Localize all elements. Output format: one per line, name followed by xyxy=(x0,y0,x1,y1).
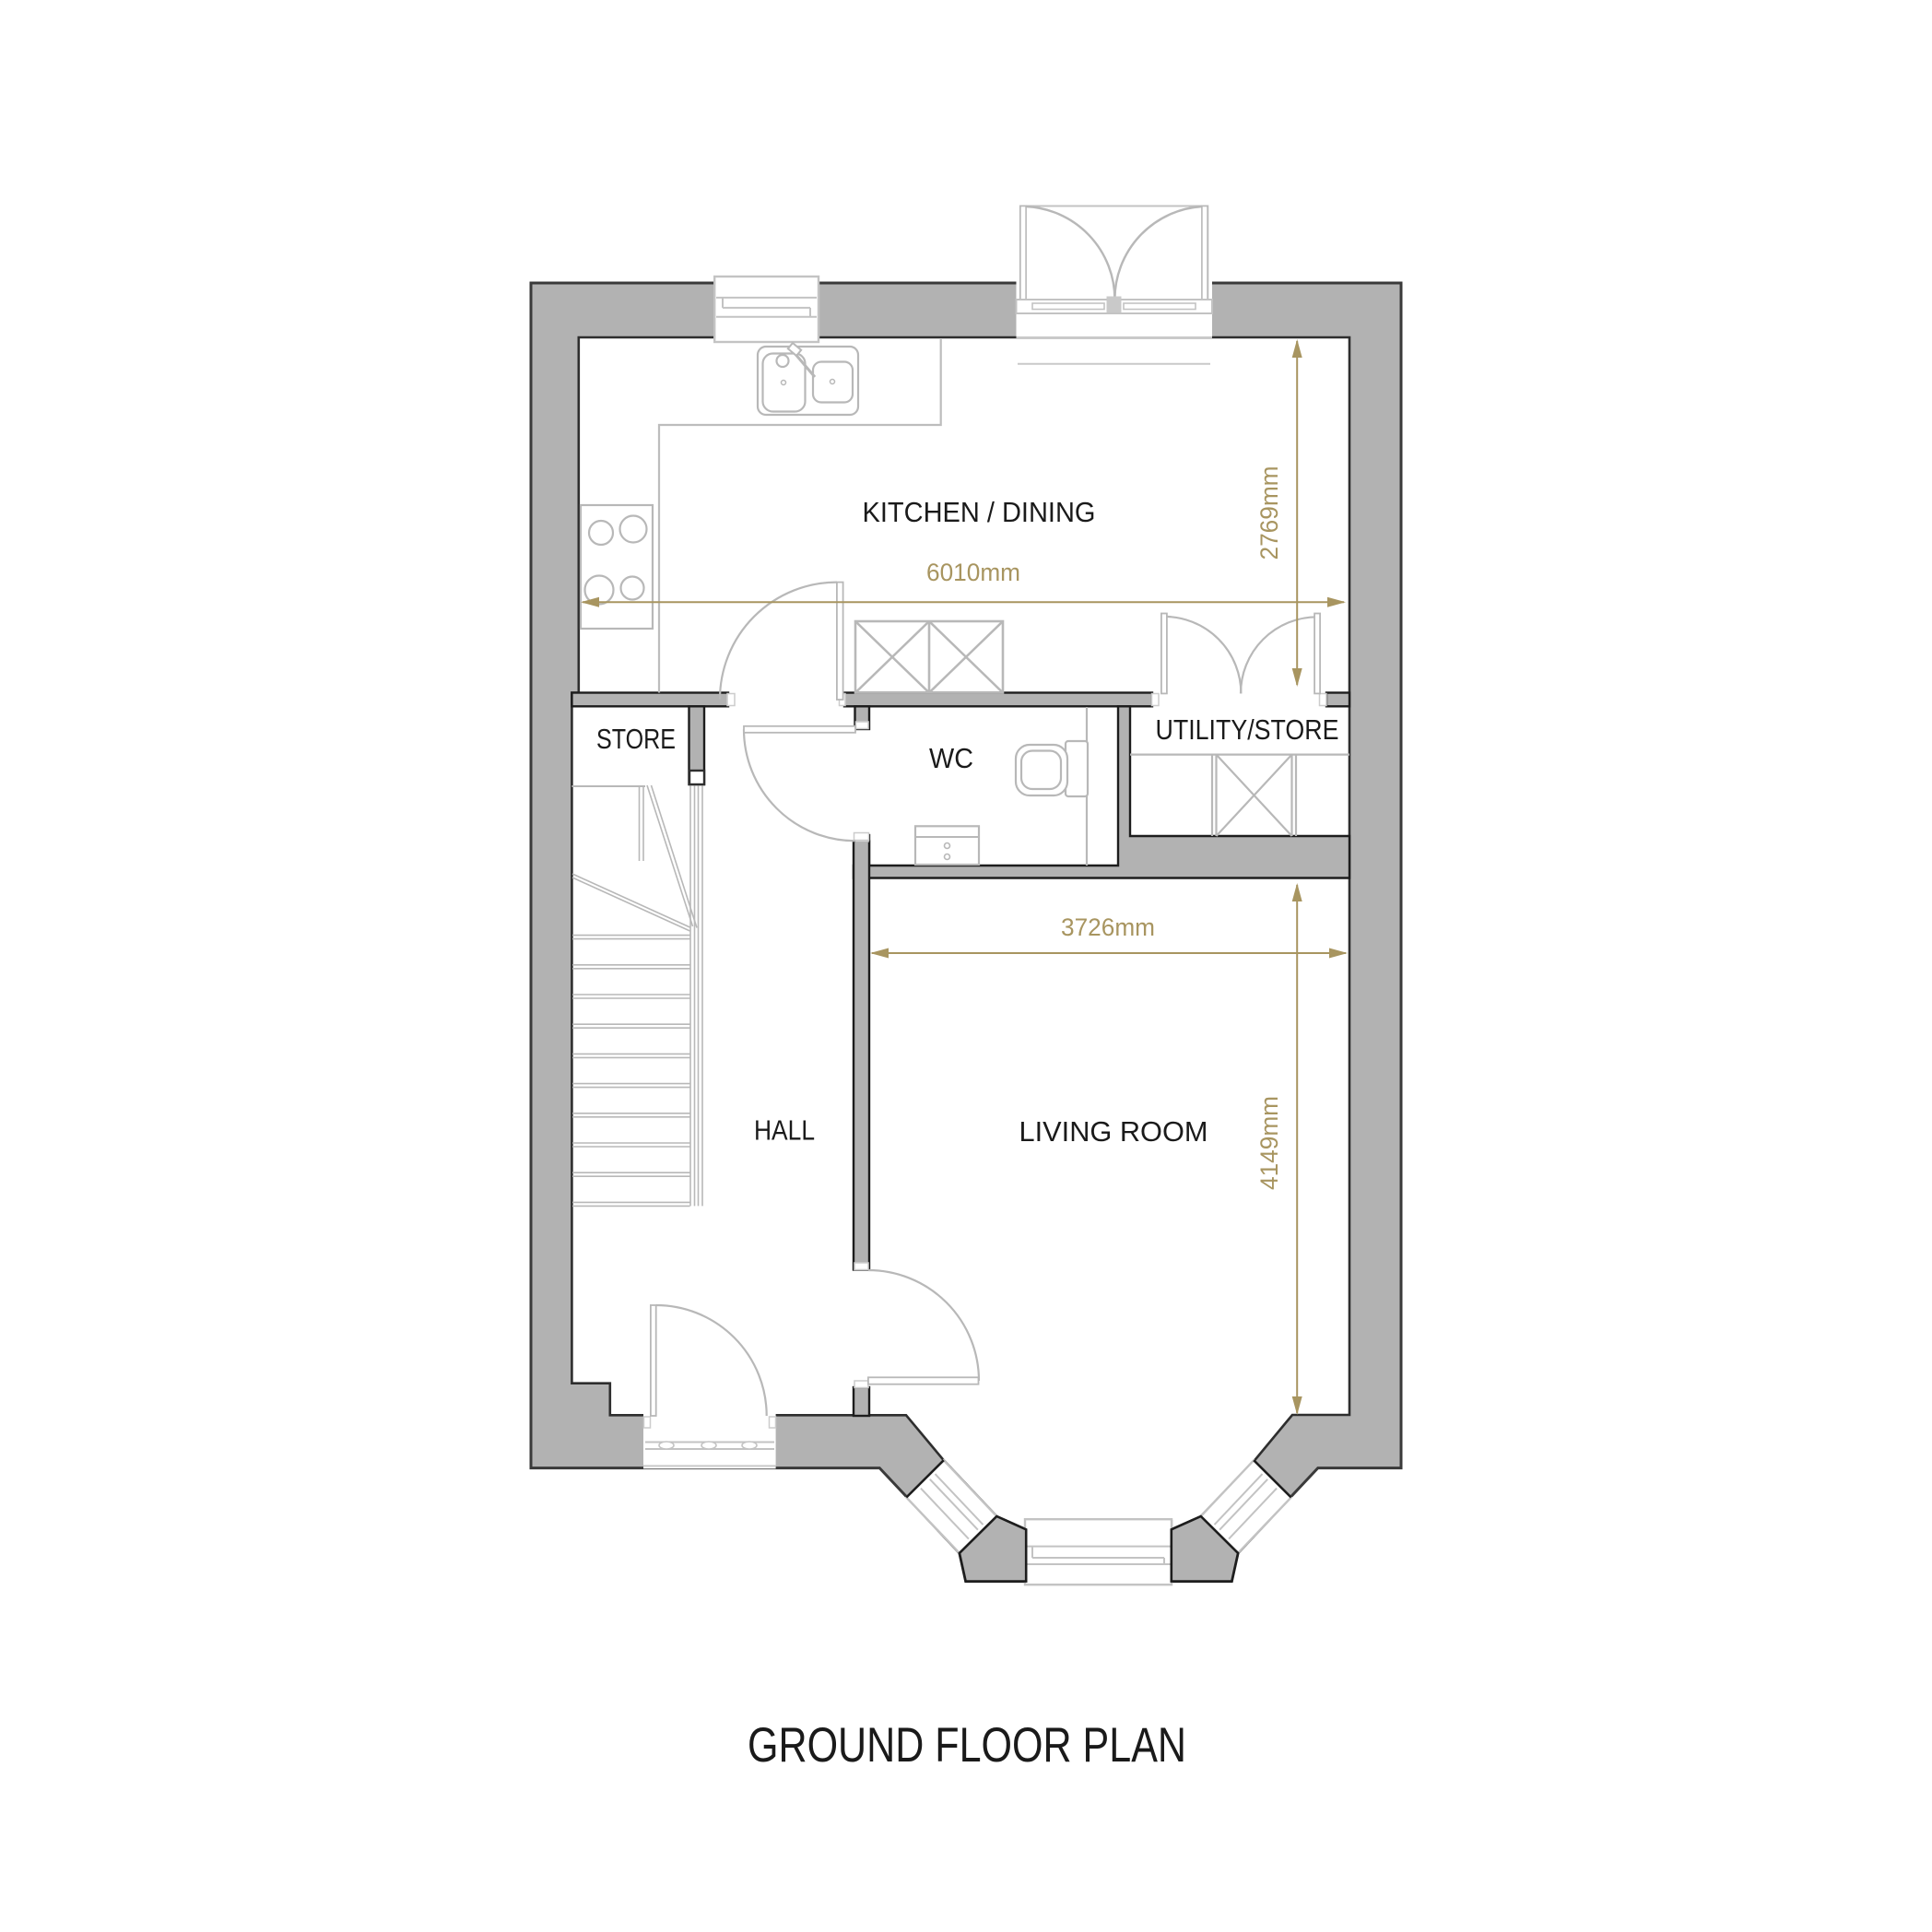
svg-text:GROUND FLOOR PLAN: GROUND FLOOR PLAN xyxy=(748,1718,1186,1773)
svg-text:HALL: HALL xyxy=(754,1114,815,1147)
svg-text:4149mm: 4149mm xyxy=(1255,1096,1283,1190)
svg-text:LIVING ROOM: LIVING ROOM xyxy=(1019,1115,1208,1148)
svg-text:UTILITY/STORE: UTILITY/STORE xyxy=(1156,713,1339,746)
svg-text:WC: WC xyxy=(929,742,973,774)
svg-text:STORE: STORE xyxy=(596,723,676,755)
svg-text:2769mm: 2769mm xyxy=(1255,466,1283,560)
svg-text:3726mm: 3726mm xyxy=(1061,913,1155,941)
svg-text:6010mm: 6010mm xyxy=(926,559,1020,586)
svg-text:KITCHEN / DINING: KITCHEN / DINING xyxy=(863,496,1096,528)
